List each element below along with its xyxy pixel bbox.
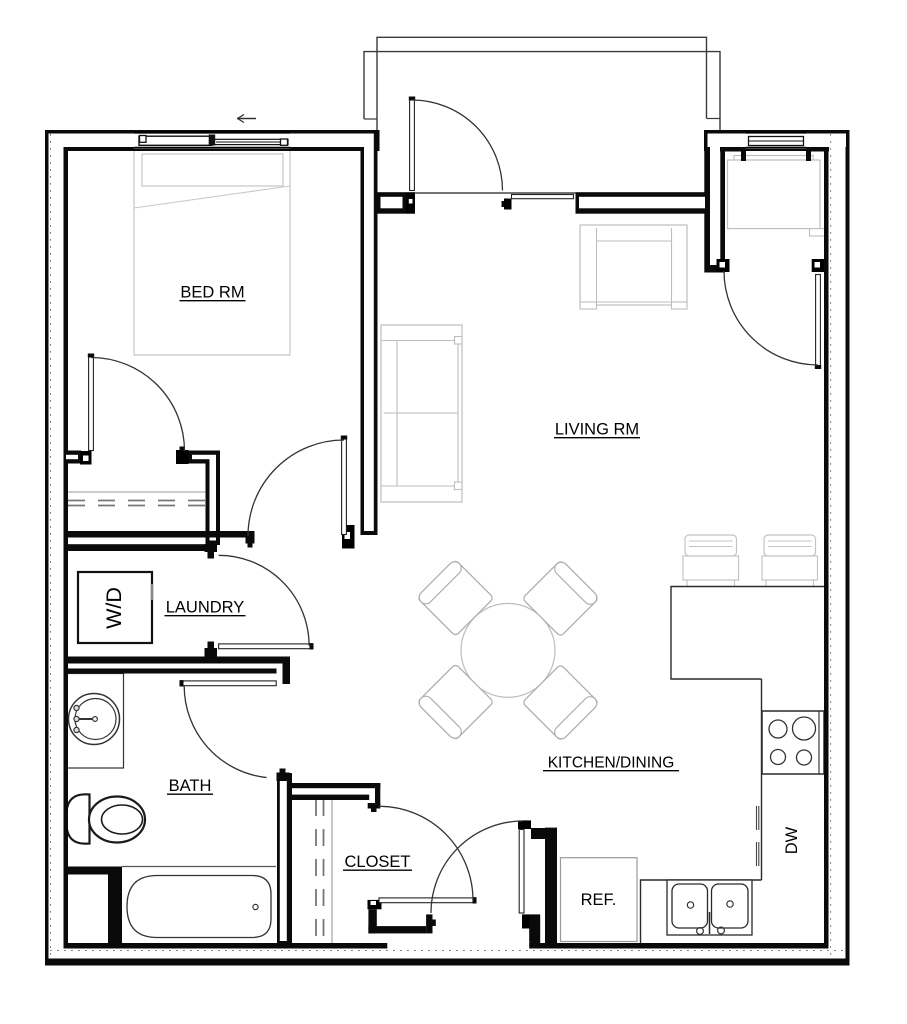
- svg-text:KITCHEN/DINING: KITCHEN/DINING: [548, 755, 675, 772]
- svg-text:CLOSET: CLOSET: [344, 853, 410, 871]
- svg-text:W/D: W/D: [102, 587, 126, 629]
- svg-text:DW: DW: [783, 826, 801, 854]
- svg-text:REF.: REF.: [581, 891, 617, 909]
- svg-text:LAUNDRY: LAUNDRY: [166, 599, 245, 617]
- svg-text:BATH: BATH: [169, 777, 212, 795]
- svg-text:LIVING RM: LIVING RM: [555, 421, 639, 439]
- svg-text:BED RM: BED RM: [180, 284, 244, 302]
